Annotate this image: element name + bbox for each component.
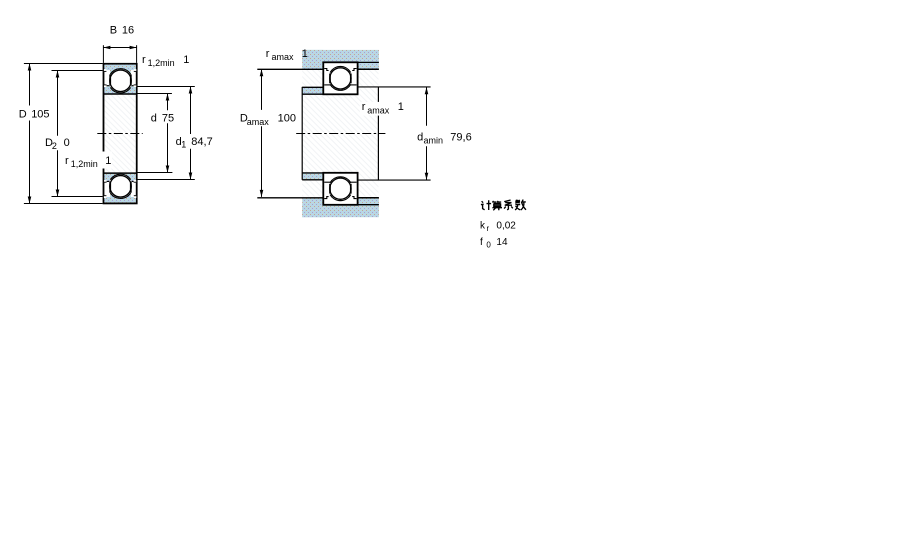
svg-text:0,02: 0,02: [496, 221, 516, 232]
svg-text:75: 75: [162, 112, 174, 124]
svg-text:14: 14: [496, 237, 508, 248]
svg-text:105: 105: [31, 108, 49, 120]
svg-text:1: 1: [398, 101, 404, 113]
svg-text:amax: amax: [247, 117, 270, 127]
svg-text:amax: amax: [367, 106, 390, 116]
svg-text:r: r: [65, 155, 69, 167]
svg-text:16: 16: [122, 25, 134, 37]
svg-text:r: r: [266, 48, 270, 60]
svg-text:1,2min: 1,2min: [71, 159, 98, 169]
svg-text:0: 0: [486, 240, 491, 249]
svg-text:1: 1: [181, 140, 186, 150]
svg-text:r: r: [487, 224, 490, 233]
svg-text:79,6: 79,6: [450, 131, 471, 143]
svg-text:1,2min: 1,2min: [148, 58, 175, 68]
svg-text:0: 0: [64, 137, 70, 149]
svg-text:f: f: [480, 237, 483, 248]
svg-text:1: 1: [105, 155, 111, 167]
svg-text:r: r: [142, 54, 146, 66]
svg-text:84,7: 84,7: [191, 136, 212, 148]
svg-text:1: 1: [183, 54, 189, 66]
svg-text:D: D: [19, 108, 27, 120]
svg-text:amax: amax: [272, 52, 295, 62]
svg-text:1: 1: [302, 48, 308, 60]
svg-text:2: 2: [52, 141, 57, 151]
svg-text:d: d: [151, 112, 157, 124]
svg-text:amin: amin: [424, 135, 444, 145]
svg-text:100: 100: [278, 112, 296, 124]
svg-text:B: B: [110, 25, 117, 37]
svg-text:r: r: [362, 101, 366, 113]
svg-text:d: d: [417, 132, 423, 144]
